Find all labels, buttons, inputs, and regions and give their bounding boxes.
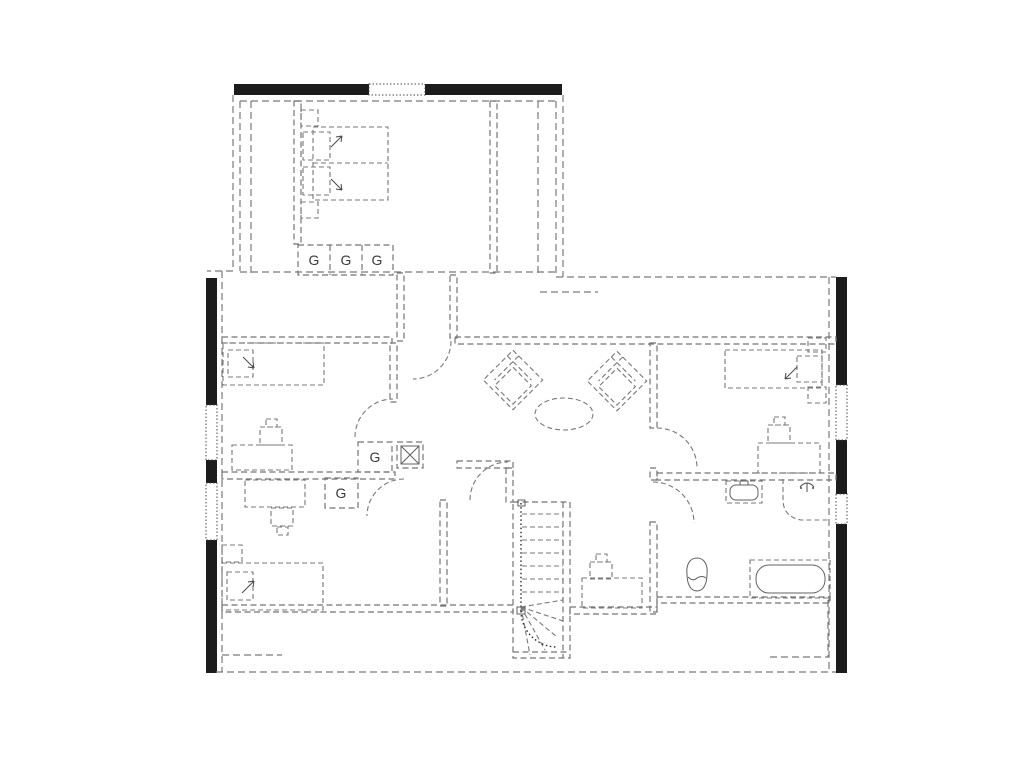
sheet-fold-arrow xyxy=(331,136,342,147)
door-arc xyxy=(657,428,697,468)
hall-landing xyxy=(483,350,646,608)
shower-faucet-icon xyxy=(800,483,814,492)
chair xyxy=(260,427,282,445)
window-icon xyxy=(206,483,217,540)
wardrobe-label: G xyxy=(341,252,352,268)
window-icon xyxy=(836,385,847,440)
desk xyxy=(758,443,820,473)
oval-table xyxy=(535,398,593,430)
sheet-fold-arrow xyxy=(242,581,254,593)
toilet xyxy=(687,558,707,591)
floor-plan: G G G G G xyxy=(0,0,1024,768)
nightstand xyxy=(301,110,318,126)
nightstand xyxy=(222,545,242,562)
door-arc xyxy=(653,482,694,523)
chair xyxy=(768,425,790,443)
stair-room-desk xyxy=(582,554,642,608)
bedroom-2: G xyxy=(223,343,423,472)
window-icon xyxy=(206,405,217,460)
chair xyxy=(590,562,612,579)
sheet-fold-arrow xyxy=(243,357,254,368)
desk xyxy=(245,480,305,507)
armchair-right xyxy=(587,351,646,410)
bathroom xyxy=(687,479,830,598)
wardrobe-hall: G xyxy=(358,442,392,472)
doors xyxy=(355,341,697,523)
sheet-fold-arrow xyxy=(785,367,797,379)
chair xyxy=(271,508,293,526)
ventilation-shaft xyxy=(397,442,423,468)
wardrobe-label: G xyxy=(370,449,381,465)
desk xyxy=(232,445,292,470)
pillow xyxy=(797,356,822,382)
nightstand xyxy=(301,202,318,218)
staircase xyxy=(513,500,570,658)
chair-back xyxy=(266,419,277,427)
desk xyxy=(582,578,642,608)
shower xyxy=(783,479,829,520)
armchair-left xyxy=(483,350,542,409)
winder-treads xyxy=(521,600,563,655)
sheet-fold-arrow xyxy=(331,179,342,190)
shaft-cross-icon xyxy=(401,446,419,464)
nightstand xyxy=(808,387,826,403)
exterior-walls xyxy=(206,84,847,673)
door-arc xyxy=(413,341,451,379)
chair-back xyxy=(277,527,288,535)
door-arc xyxy=(355,399,393,437)
washbasin xyxy=(726,481,762,503)
wardrobe-label: G xyxy=(309,252,320,268)
single-bed xyxy=(222,563,323,610)
stair-treads xyxy=(522,514,563,592)
window-icon xyxy=(369,84,425,95)
single-bed xyxy=(223,343,324,385)
wardrobe-room3: G xyxy=(325,478,358,508)
pillow xyxy=(303,167,330,195)
bedroom-master: G G G xyxy=(298,110,393,275)
wardrobe-row: G G G xyxy=(298,245,393,275)
pillow xyxy=(303,132,330,160)
window-icon xyxy=(836,494,847,524)
chair-back xyxy=(596,554,607,562)
chair-back xyxy=(774,417,785,425)
bathtub xyxy=(750,560,830,598)
wardrobe-label: G xyxy=(372,252,383,268)
bedroom-4 xyxy=(725,338,826,473)
floor-plan-canvas: G G G G G xyxy=(0,0,1024,768)
bedroom-3: G xyxy=(222,478,358,610)
interior-walls xyxy=(222,101,836,614)
wardrobe-label: G xyxy=(336,485,347,501)
door-arc xyxy=(367,479,404,516)
